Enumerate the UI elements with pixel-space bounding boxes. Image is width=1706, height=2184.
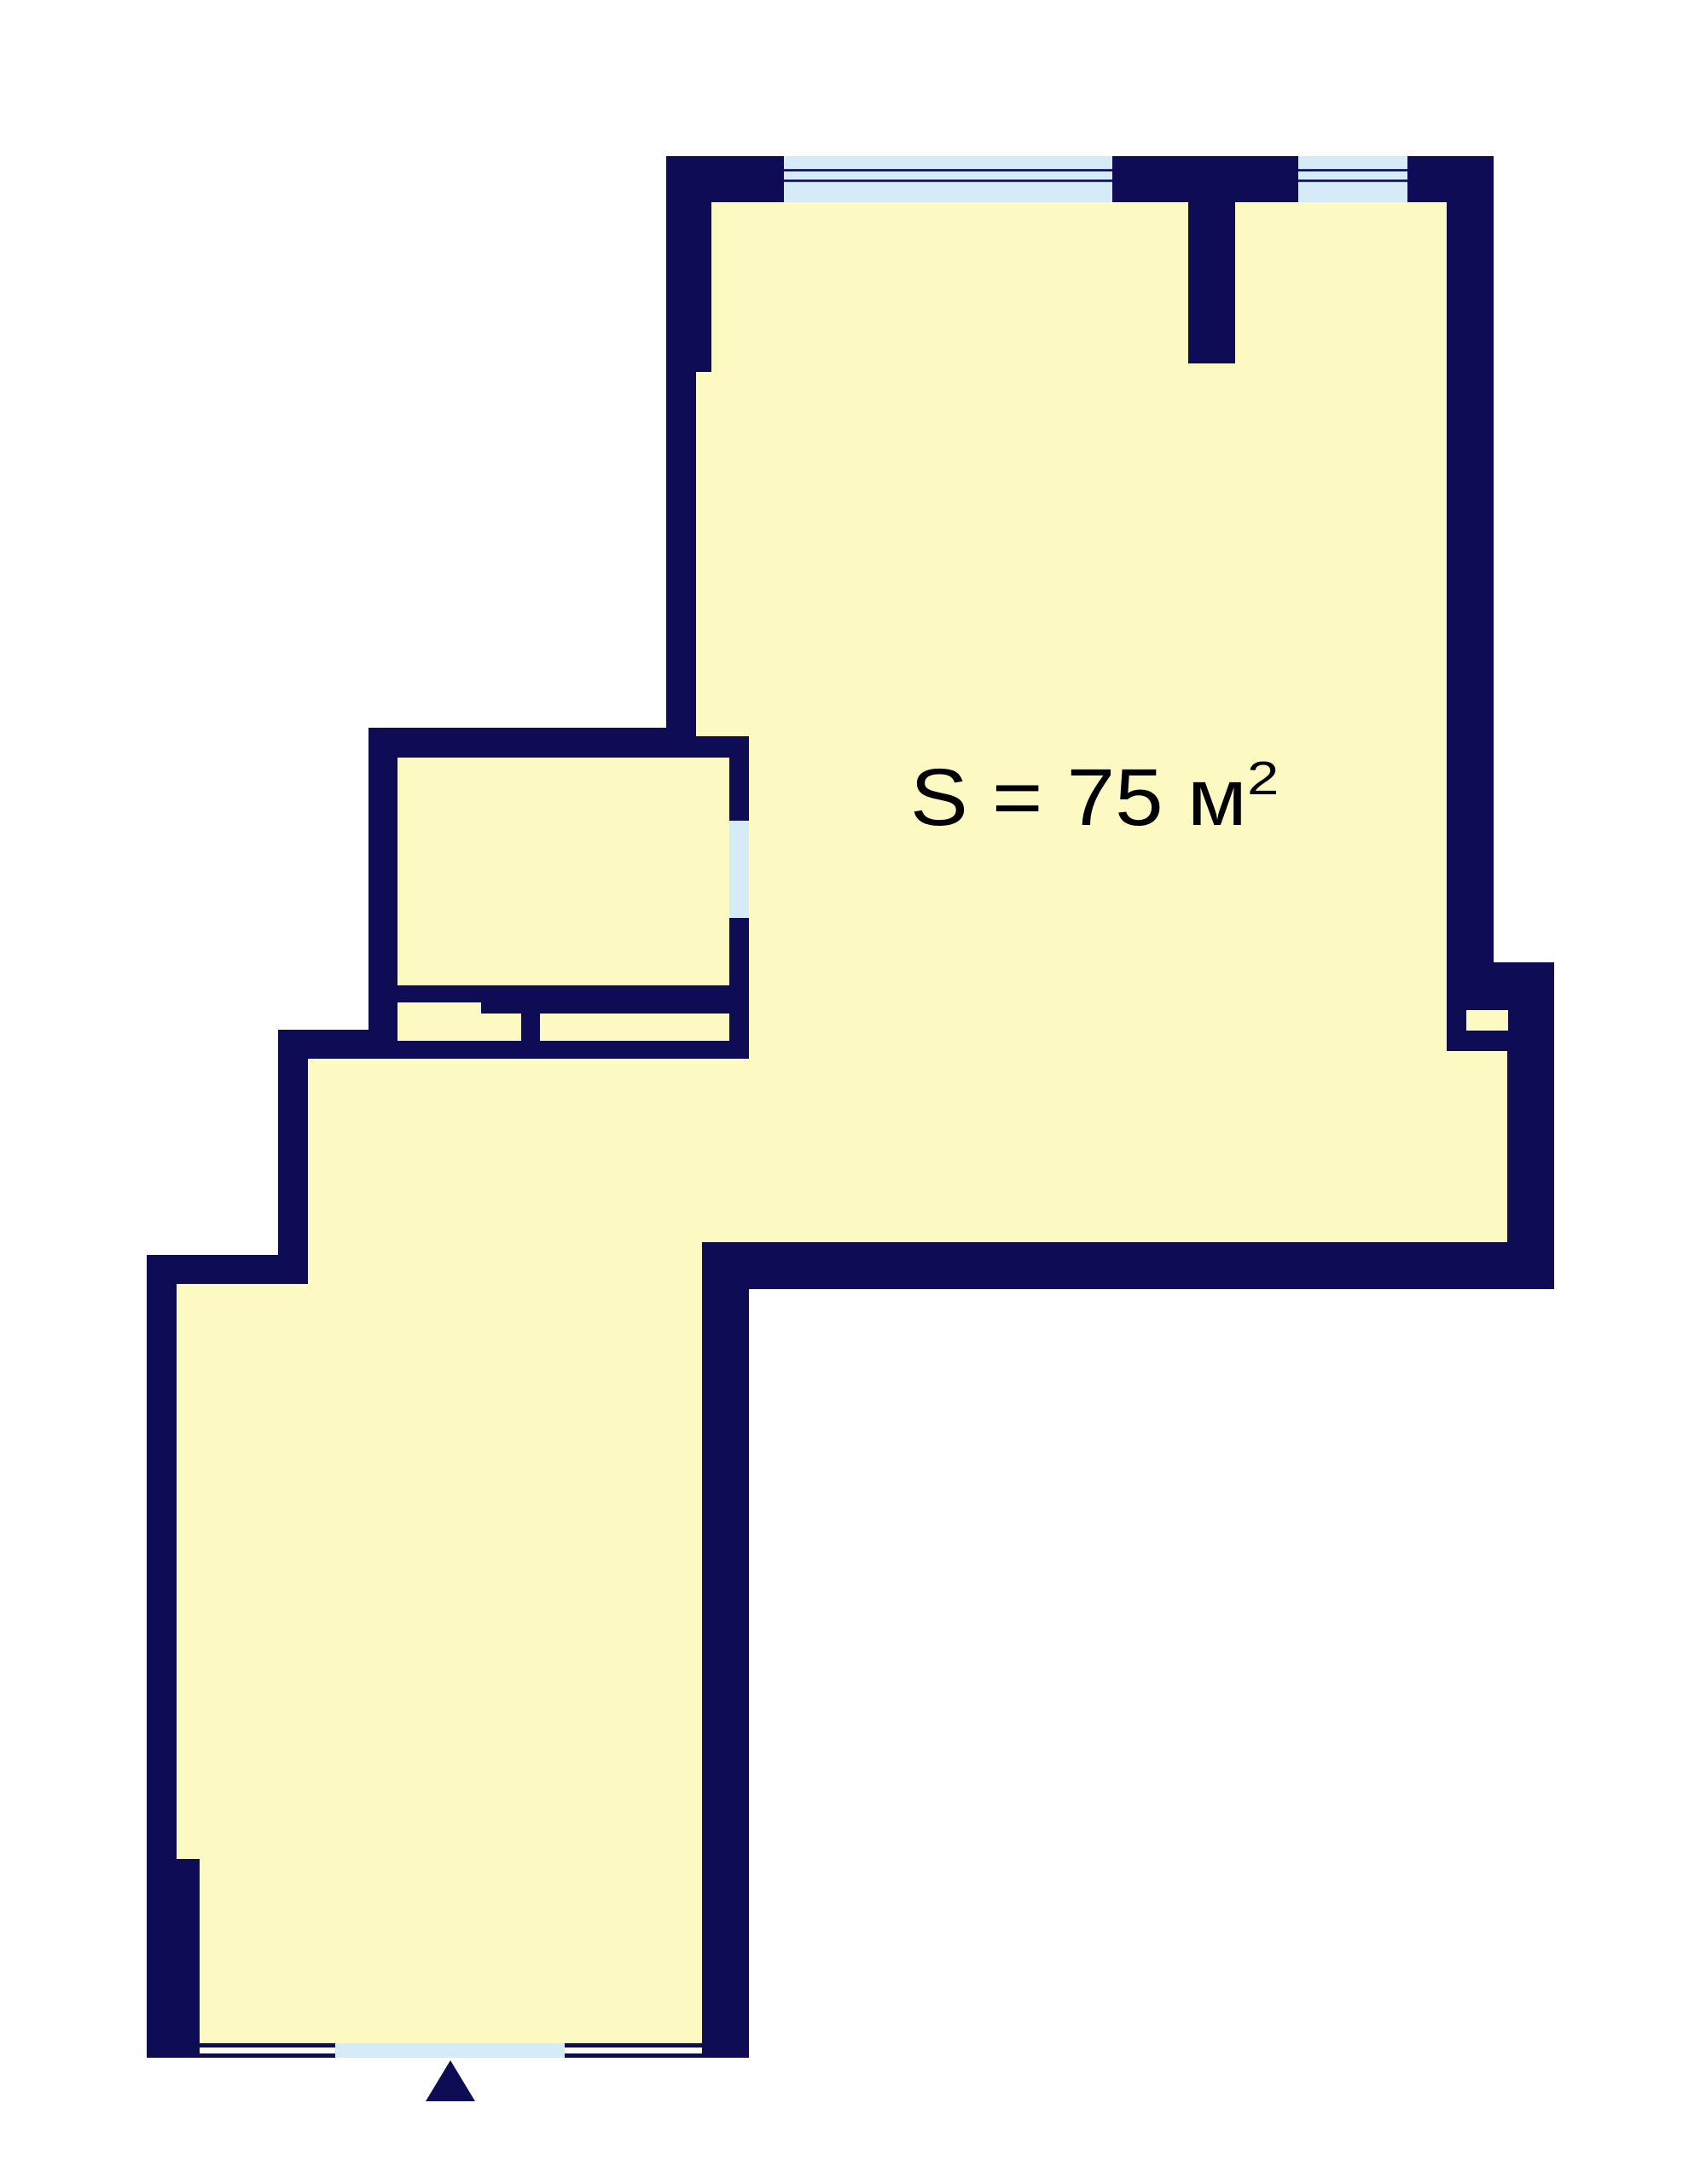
svg-text:2: 2 (1247, 752, 1279, 804)
svg-text:S = 75 м: S = 75 м (910, 752, 1247, 842)
